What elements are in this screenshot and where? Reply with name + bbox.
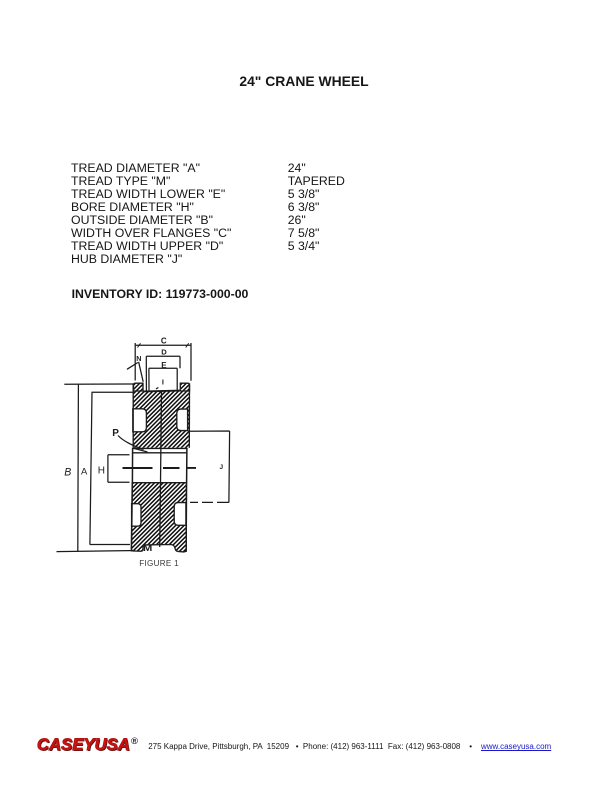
svg-text:M: M: [143, 543, 152, 553]
svg-text:N: N: [136, 354, 141, 363]
svg-text:D: D: [161, 348, 167, 357]
svg-text:P: P: [112, 428, 119, 439]
svg-text:FIGURE 1: FIGURE 1: [139, 559, 179, 568]
svg-text:I: I: [162, 377, 164, 386]
svg-text:C: C: [161, 337, 167, 346]
svg-text:B: B: [64, 467, 71, 479]
svg-text:E: E: [161, 361, 167, 370]
svg-text:H: H: [98, 466, 105, 477]
svg-text:J: J: [220, 464, 224, 471]
svg-text:A: A: [81, 466, 88, 477]
